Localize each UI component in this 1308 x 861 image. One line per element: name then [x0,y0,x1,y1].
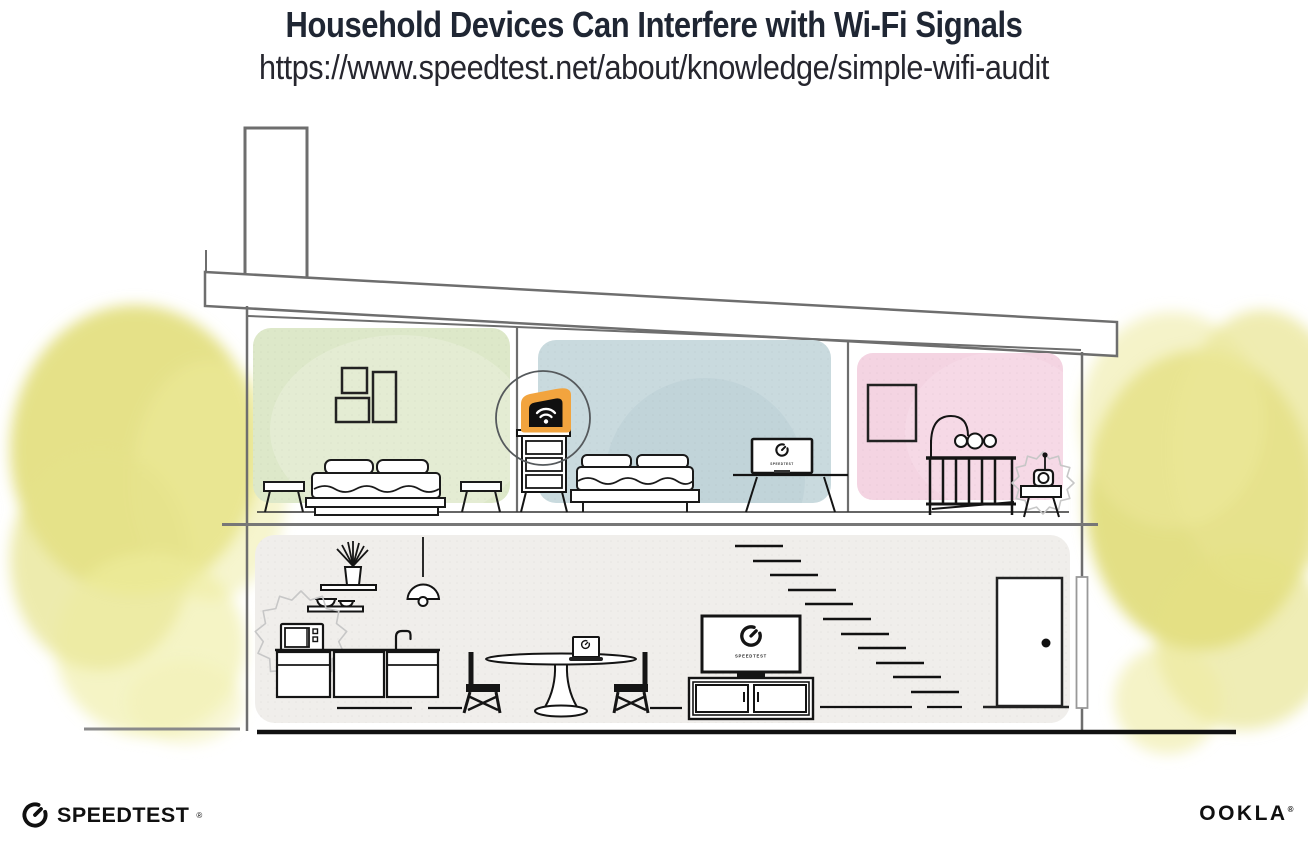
front-door [983,578,1069,707]
doorknob [1042,639,1051,648]
speedtest-logo: SPEEDTEST® [20,800,202,830]
media-console [689,678,813,719]
pillow [377,460,428,474]
speedtest-trademark: ® [196,811,202,820]
mattress [312,473,440,498]
shelf [321,585,376,590]
wifi-router [521,388,571,432]
chimney [245,128,307,282]
monitor-screen-label: SPEEDTEST [770,462,793,466]
table-top [486,654,636,665]
bed-base [315,507,438,515]
ookla-trademark: ® [1288,805,1296,814]
tv-set: SPEEDTEST [689,616,813,719]
tv-screen-label: SPEEDTEST [735,654,767,659]
ookla-wordmark: OOKLA [1199,802,1287,825]
pillow [325,460,373,474]
laptop [569,637,603,661]
tv-stand [737,674,765,678]
house-cross-section-illustration: SPEEDTEST [0,0,1308,861]
bed-platform [306,498,445,507]
microwave [281,624,323,651]
table-base [535,706,587,717]
speedtest-wordmark: SPEEDTEST [57,803,189,828]
desktop-monitor: SPEEDTEST [752,439,812,473]
downspout [1077,577,1088,708]
foliage-right [1080,310,1308,754]
speedtest-gauge-icon [20,800,50,830]
bed-platform [571,490,699,502]
vase [345,567,361,585]
ookla-logo: OOKLA® [1199,802,1296,826]
